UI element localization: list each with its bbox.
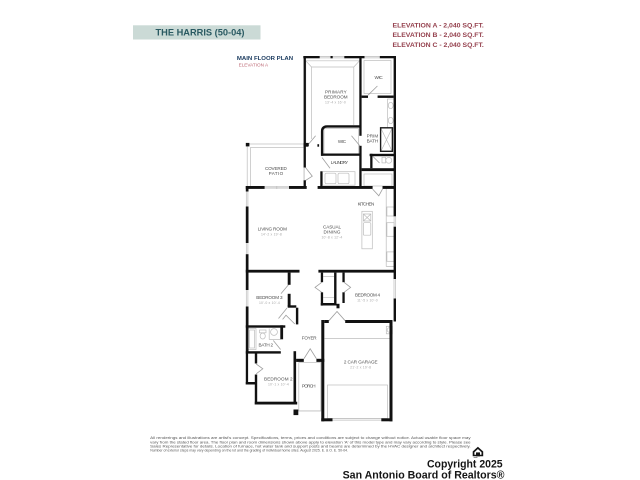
- svg-text:10'-0 x 10'-4: 10'-0 x 10'-4: [259, 301, 280, 305]
- svg-text:ELEVATION A: ELEVATION A: [239, 63, 269, 68]
- svg-text:PATIO: PATIO: [269, 171, 284, 176]
- svg-text:ELEVATION C - 2,040 SQ.FT.: ELEVATION C - 2,040 SQ.FT.: [393, 42, 484, 49]
- svg-text:ELEVATION B - 2,040 SQ.FT.: ELEVATION B - 2,040 SQ.FT.: [393, 32, 484, 39]
- svg-text:DINING: DINING: [324, 229, 341, 234]
- svg-text:14'-2 x 19'-8: 14'-2 x 19'-8: [261, 233, 282, 237]
- svg-text:BATH 2: BATH 2: [259, 342, 274, 347]
- svg-text:ELEVATION A - 2,040 SQ.FT.: ELEVATION A - 2,040 SQ.FT.: [393, 22, 484, 29]
- svg-text:MAIN FLOOR PLAN: MAIN FLOOR PLAN: [237, 56, 293, 62]
- svg-text:BEDROOM 2: BEDROOM 2: [264, 377, 293, 382]
- svg-text:21'-2 x 19'-8: 21'-2 x 19'-8: [350, 366, 371, 370]
- svg-text:Number of exterior steps may v: Number of exterior steps may vary depend…: [150, 449, 348, 453]
- svg-text:WIC: WIC: [375, 75, 384, 80]
- svg-text:THE HARRIS (50-04): THE HARRIS (50-04): [156, 28, 245, 38]
- svg-text:LAUNDRY: LAUNDRY: [331, 160, 349, 165]
- svg-text:LIVING ROOM: LIVING ROOM: [258, 227, 287, 232]
- svg-text:KITCHEN: KITCHEN: [358, 201, 375, 206]
- svg-text:BEDROOM: BEDROOM: [324, 94, 348, 99]
- svg-text:BEDROOM 3: BEDROOM 3: [256, 295, 283, 300]
- svg-text:2 CAR GARAGE: 2 CAR GARAGE: [344, 360, 378, 365]
- svg-text:WIC: WIC: [338, 139, 347, 144]
- svg-text:FOYER: FOYER: [302, 336, 317, 341]
- svg-text:11'-5 x 10'-0: 11'-5 x 10'-0: [357, 298, 378, 302]
- svg-text:BATH: BATH: [367, 138, 379, 143]
- svg-text:10'-8 x 12'-4: 10'-8 x 12'-4: [321, 236, 342, 240]
- svg-text:BEDROOM 4: BEDROOM 4: [355, 293, 380, 298]
- svg-text:10'-1 x 10'-4: 10'-1 x 10'-4: [268, 382, 289, 386]
- svg-text:San Antonio Board of Realtors®: San Antonio Board of Realtors®: [343, 470, 505, 480]
- svg-text:13'-4 x 16'-0: 13'-4 x 16'-0: [325, 101, 346, 105]
- svg-text:PORCH: PORCH: [302, 384, 316, 389]
